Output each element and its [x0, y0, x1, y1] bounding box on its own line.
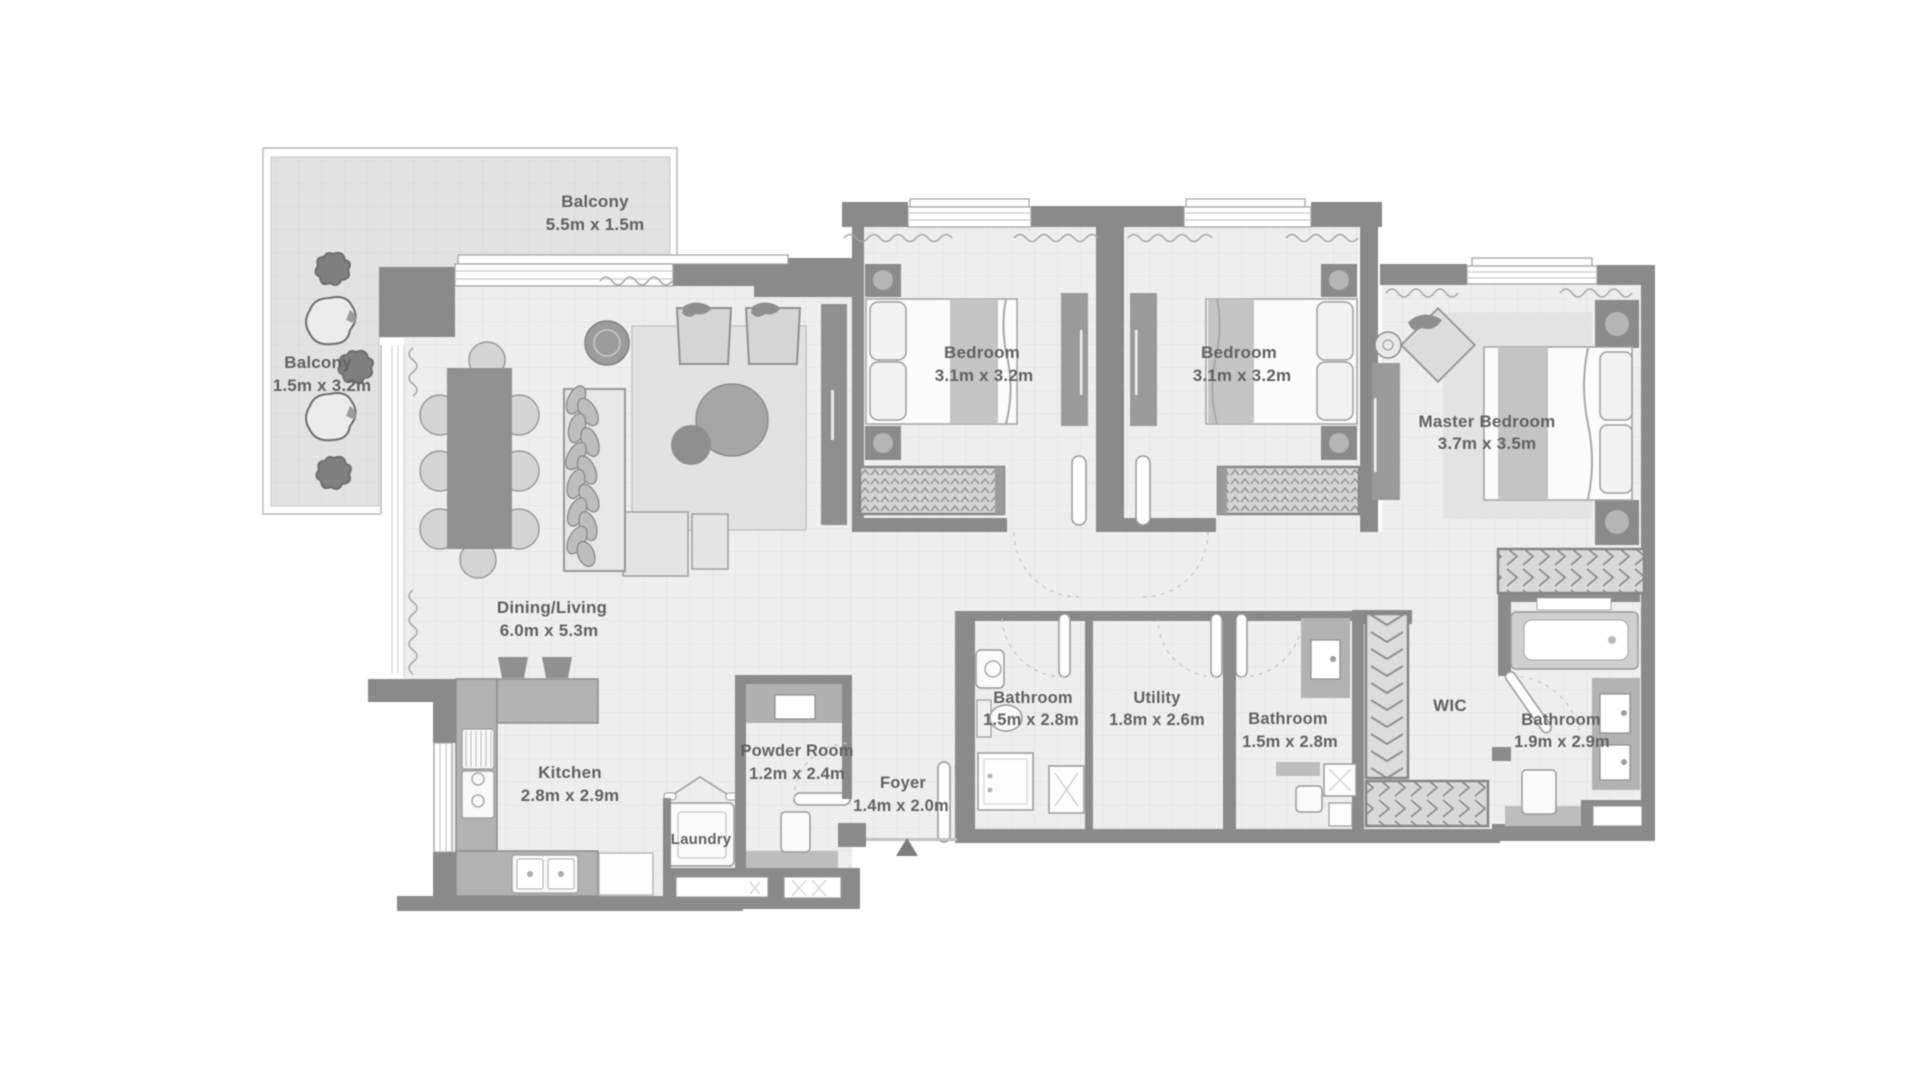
svg-text:1.9m x 2.9m: 1.9m x 2.9m [1514, 733, 1610, 751]
svg-text:3.7m x 3.5m: 3.7m x 3.5m [1438, 434, 1537, 453]
svg-text:Dining/Living: Dining/Living [497, 598, 607, 617]
svg-text:WIC: WIC [1433, 696, 1467, 715]
svg-text:5.5m x 1.5m: 5.5m x 1.5m [546, 215, 645, 234]
svg-text:1.5m x 2.8m: 1.5m x 2.8m [983, 711, 1079, 729]
svg-text:Balcony: Balcony [561, 192, 629, 211]
svg-text:Utility: Utility [1133, 689, 1181, 707]
svg-text:Kitchen: Kitchen [538, 763, 602, 782]
svg-text:Bathroom: Bathroom [993, 689, 1073, 707]
svg-text:Powder Room: Powder Room [740, 742, 853, 760]
svg-text:Bathroom: Bathroom [1521, 711, 1601, 729]
svg-text:1.2m x 2.4m: 1.2m x 2.4m [749, 765, 845, 783]
svg-text:3.1m x 3.2m: 3.1m x 3.2m [935, 366, 1034, 385]
svg-text:3.1m x 3.2m: 3.1m x 3.2m [1193, 366, 1292, 385]
svg-text:1.4m x 2.0m: 1.4m x 2.0m [853, 797, 949, 815]
svg-text:Bedroom: Bedroom [1201, 343, 1277, 362]
svg-text:1.5m x 2.8m: 1.5m x 2.8m [1242, 733, 1338, 751]
svg-text:2.8m x 2.9m: 2.8m x 2.9m [521, 786, 620, 805]
svg-text:6.0m x 5.3m: 6.0m x 5.3m [500, 621, 599, 640]
svg-text:1.8m x 2.6m: 1.8m x 2.6m [1109, 711, 1205, 729]
svg-text:Laundry: Laundry [671, 831, 732, 848]
svg-text:Balcony: Balcony [284, 353, 352, 372]
svg-text:Master Bedroom: Master Bedroom [1419, 412, 1556, 431]
svg-text:Bathroom: Bathroom [1248, 710, 1328, 728]
svg-text:1.5m x 3.2m: 1.5m x 3.2m [273, 376, 372, 395]
svg-text:Foyer: Foyer [880, 774, 926, 792]
svg-text:Bedroom: Bedroom [944, 343, 1020, 362]
